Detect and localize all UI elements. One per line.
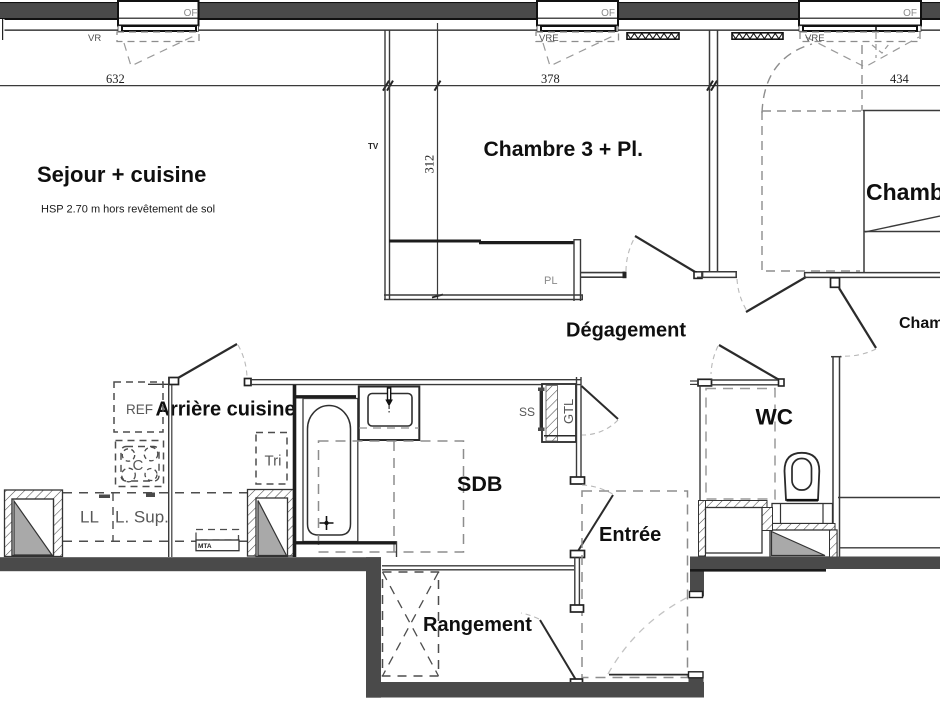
svg-text:SDB: SDB (457, 472, 502, 496)
svg-text:WC: WC (756, 405, 794, 430)
svg-text:C: C (133, 457, 144, 474)
svg-text:HSP 2.70 m hors revêtement de: HSP 2.70 m hors revêtement de sol (41, 204, 215, 216)
svg-text:Sejour + cuisine: Sejour + cuisine (37, 162, 206, 187)
svg-text:Chambre: Chambre (866, 179, 940, 205)
svg-text:Arrière cuisine: Arrière cuisine (156, 399, 296, 421)
svg-text:Rangement: Rangement (423, 614, 532, 636)
svg-text:Chambre 3 + Pl.: Chambre 3 + Pl. (484, 138, 644, 161)
svg-text:312: 312 (423, 155, 437, 174)
svg-text:434: 434 (890, 72, 910, 86)
svg-text:REF: REF (126, 402, 153, 417)
svg-text:OF: OF (903, 8, 917, 19)
svg-text:VRE: VRE (805, 33, 825, 44)
svg-text:SS: SS (519, 405, 535, 419)
svg-text:378: 378 (541, 72, 560, 86)
svg-text:OF: OF (184, 8, 198, 19)
svg-text:LL: LL (80, 508, 99, 527)
svg-text:VR: VR (88, 33, 101, 44)
svg-text:L. Sup.: L. Sup. (115, 508, 169, 527)
svg-text:632: 632 (106, 72, 125, 86)
svg-text:GTL: GTL (561, 399, 576, 424)
svg-text:VRE: VRE (539, 33, 559, 44)
svg-text:Dégagement: Dégagement (566, 320, 686, 342)
svg-text:MTA: MTA (198, 543, 212, 550)
svg-text:Entrée: Entrée (599, 524, 661, 546)
svg-text:Tri: Tri (265, 453, 282, 470)
svg-text:OF: OF (601, 8, 615, 19)
svg-text:TV: TV (368, 142, 379, 151)
svg-text:Cham: Cham (899, 315, 940, 332)
svg-text:PL: PL (544, 275, 557, 287)
